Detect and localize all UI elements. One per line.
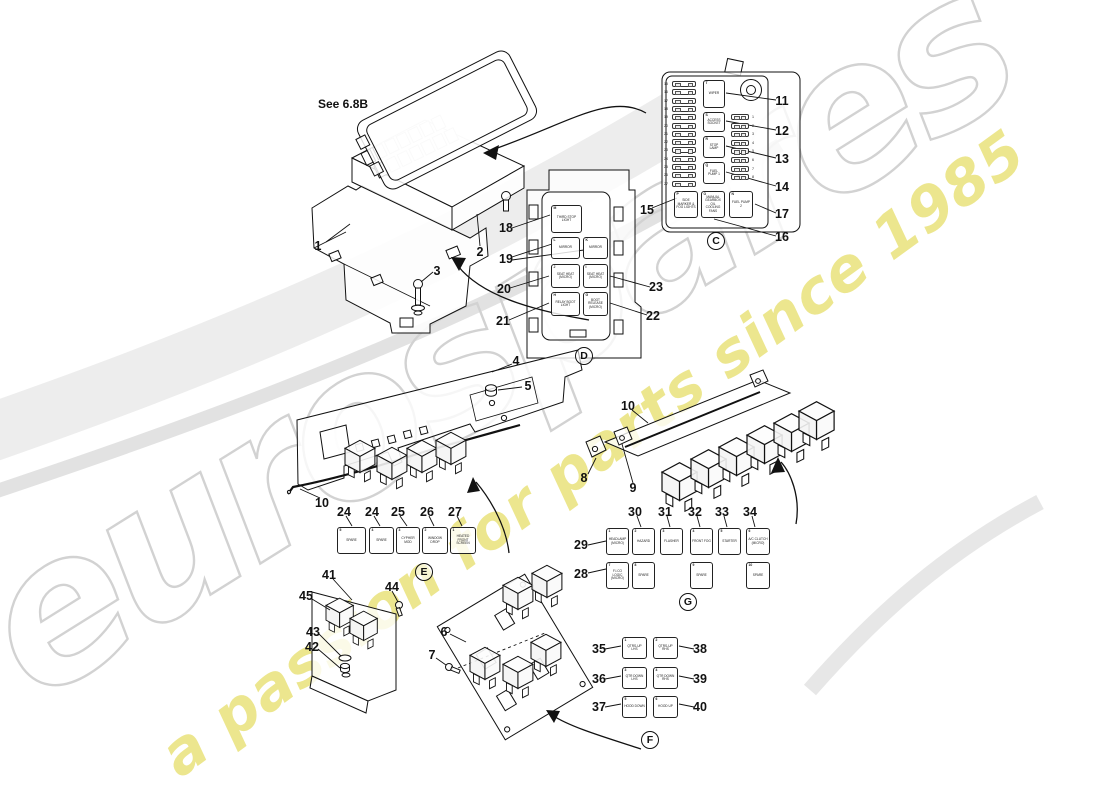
group-g-relay: 4FRONT FOG — [690, 528, 713, 555]
group-f-relay: 5HOOD DOWN — [622, 696, 647, 718]
part-number-34: 34 — [743, 505, 757, 519]
fuse-contact — [734, 125, 740, 129]
relay-position-mark: 9 — [693, 564, 695, 568]
relay-label: FUEL PUMP 1 — [705, 170, 723, 177]
relay-label: STOP LAMP — [705, 144, 723, 151]
relay-position-mark: R — [706, 138, 708, 142]
parts-diagram-page: eurospares a passion for parts since 198… — [0, 0, 1100, 800]
fuse-contact — [688, 125, 694, 129]
panel-c-left-fuse — [672, 123, 696, 129]
fuse-contact — [734, 142, 740, 146]
panel-c-left-fuse — [672, 164, 696, 170]
fuse-number: 17 — [664, 99, 668, 103]
labels-overlay: See 6.8B 1234510242425262789101112131417… — [0, 0, 1100, 800]
fuse-contact — [741, 150, 747, 154]
part-number-8: 8 — [581, 471, 588, 485]
relay-label: QTR DOWN RHS — [655, 675, 676, 682]
panel-c-right-fuse — [731, 114, 749, 120]
fuse-contact — [675, 141, 681, 145]
panel-d-relay: MTHIRD STOP LIGHT — [551, 205, 582, 233]
panel-d-relay: ISEAT HEAT (MICRO) — [583, 264, 608, 288]
part-number-10: 10 — [621, 399, 635, 413]
part-number-21: 21 — [496, 314, 510, 328]
fuse-number: 25 — [664, 165, 668, 169]
group-f-relay: 1QTRS-UP LHS — [622, 637, 647, 659]
relay-position-mark: 4 — [372, 529, 374, 533]
fuse-contact — [734, 168, 740, 172]
group-f-relay: 2QTRS-UP RHS — [653, 637, 678, 659]
relay-position-mark: M — [554, 207, 557, 211]
relay-position-mark: H — [554, 294, 556, 298]
relay-position-mark: 2 — [635, 530, 637, 534]
part-number-25: 25 — [391, 505, 405, 519]
group-g-relay: 8SPARE — [632, 562, 655, 589]
group-f-relay: 3QTR DOWN LHS — [622, 667, 647, 689]
panel-c-left-fuse — [672, 147, 696, 153]
panel-d-relay: HRELAY BOOT LIGHT — [551, 292, 580, 316]
relay-position-mark: 2 — [425, 529, 427, 533]
fuse-number: 1 — [752, 115, 754, 119]
part-number-33: 33 — [715, 505, 729, 519]
relay-position-mark: 6 — [749, 530, 751, 534]
fuse-number: 4 — [752, 141, 754, 145]
part-number-45: 45 — [299, 589, 313, 603]
part-number-22: 22 — [646, 309, 660, 323]
relay-label: HAZARD — [634, 540, 653, 543]
part-number-31: 31 — [658, 505, 672, 519]
panel-c-relay: QFUEL PUMP 1 — [703, 162, 725, 184]
group-f-relay: 4QTR DOWN RHS — [653, 667, 678, 689]
relay-position-mark: 1 — [625, 639, 627, 643]
relay-position-mark: 5 — [340, 529, 342, 533]
relay-label: WINDOW DROP — [424, 537, 446, 544]
fuse-number: 5 — [752, 149, 754, 153]
relay-position-mark: 3 — [625, 669, 627, 673]
part-number-18: 18 — [499, 221, 513, 235]
relay-label: FLASHER — [662, 540, 681, 543]
part-number-1: 1 — [315, 239, 322, 253]
part-number-42: 42 — [305, 640, 319, 654]
fuse-number: 6 — [752, 158, 754, 162]
relay-label: SPARE — [371, 539, 392, 542]
relay-label: RELAY BOOT LIGHT — [553, 301, 578, 308]
fuse-number: 7 — [752, 167, 754, 171]
fuse-contact — [688, 100, 694, 104]
part-number-30: 30 — [628, 505, 642, 519]
relay-label: FRONT FOG — [692, 540, 711, 543]
panel-c-left-fuse — [672, 106, 696, 112]
relay-label: FUEL PUMP 2 — [731, 201, 751, 208]
relay-label: HOOD DOWN — [624, 705, 645, 708]
panel-d-relay: GBOOT RELEASE (MICRO) — [583, 292, 608, 316]
part-number-5: 5 — [525, 379, 532, 393]
group-g-relay: 2HAZARD — [632, 528, 655, 555]
fuse-contact — [741, 176, 747, 180]
part-number-27: 27 — [448, 505, 462, 519]
fuse-number: 27 — [664, 182, 668, 186]
fuse-contact — [688, 174, 694, 178]
relay-label: THIRD STOP LIGHT — [553, 216, 580, 223]
fuse-contact — [741, 125, 747, 129]
fuse-contact — [688, 149, 694, 153]
panel-c-right-fuse — [731, 148, 749, 154]
fuse-contact — [734, 150, 740, 154]
part-number-44: 44 — [385, 580, 399, 594]
fuse-contact — [734, 159, 740, 163]
part-number-17: 17 — [775, 207, 789, 221]
fuse-contact — [688, 158, 694, 162]
panel-c-right-fuse — [731, 166, 749, 172]
group-g-relay: 7F.I.CO LOGIC (MICRO) — [606, 562, 629, 589]
relay-label: QTRS-UP RHS — [655, 645, 676, 652]
part-number-4: 4 — [513, 354, 520, 368]
panel-d-relay: JSEAT HEAT (MICRO) — [551, 264, 580, 288]
section-marker-c: C — [707, 232, 725, 250]
part-number-10: 10 — [315, 496, 329, 510]
panel-d-relay: KMIRROR — [583, 237, 608, 259]
group-g-relay: 9SPARE — [690, 562, 713, 589]
relay-position-mark: 3 — [399, 529, 401, 533]
fuse-number: 19 — [664, 115, 668, 119]
relay-label: WIPER — [705, 92, 723, 95]
panel-c-relay: TWIPER — [703, 80, 725, 108]
panel-c-right-fuse — [731, 157, 749, 163]
relay-label: SPARE — [634, 574, 653, 577]
part-number-39: 39 — [693, 672, 707, 686]
relay-label: QTR DOWN LHS — [624, 675, 645, 682]
fuse-number: 2 — [752, 124, 754, 128]
relay-position-mark: 5 — [625, 698, 627, 702]
relay-label: MIRROR — [553, 246, 578, 249]
part-number-38: 38 — [693, 642, 707, 656]
panel-c-right-fuse — [731, 123, 749, 129]
row-e-relay: 1HEATED FRONT SCREEN — [450, 527, 476, 554]
fuse-contact — [741, 116, 747, 120]
panel-c-left-fuse — [672, 139, 696, 145]
see-reference-note: See 6.8B — [318, 97, 368, 111]
part-number-14: 14 — [775, 180, 789, 194]
fuse-contact — [675, 83, 681, 87]
fuse-contact — [688, 116, 694, 120]
fuse-number: 20 — [664, 124, 668, 128]
part-number-23: 23 — [649, 280, 663, 294]
fuse-contact — [734, 116, 740, 120]
relay-position-mark: S — [706, 114, 708, 118]
part-number-26: 26 — [420, 505, 434, 519]
relay-label: HOOD UP — [655, 705, 676, 708]
part-number-13: 13 — [775, 152, 789, 166]
relay-label: A/C CLUTCH (MICRO) — [748, 538, 768, 545]
row-e-relay: 4SPARE — [369, 527, 394, 554]
relay-position-mark: 4 — [656, 669, 658, 673]
panel-d-relay: LMIRROR — [551, 237, 580, 259]
fuse-contact — [688, 108, 694, 112]
fuse-contact — [688, 183, 694, 187]
relay-label: ACCESS SOCKET — [705, 119, 723, 126]
relay-label: SPARE — [748, 574, 768, 577]
relay-label: MIRROR — [585, 246, 606, 249]
fuse-number: 24 — [664, 157, 668, 161]
relay-position-mark: 4 — [693, 530, 695, 534]
fuse-contact — [675, 100, 681, 104]
fuse-contact — [675, 125, 681, 129]
panel-c-relay: NFUEL PUMP 2 — [729, 191, 753, 218]
panel-c-left-fuse — [672, 114, 696, 120]
fuse-number: 23 — [664, 148, 668, 152]
relay-position-mark: Q — [706, 164, 709, 168]
relay-label: SEAT HEAT (MICRO) — [553, 273, 578, 280]
group-f-relay: 6HOOD UP — [653, 696, 678, 718]
fuse-contact — [741, 168, 747, 172]
part-number-29: 29 — [574, 538, 588, 552]
relay-label: MANUAL GEARBOX OIL COOLING FANS — [703, 196, 723, 213]
relay-position-mark: I — [586, 266, 587, 270]
section-marker-d: D — [575, 347, 593, 365]
relay-position-mark: L — [554, 239, 556, 243]
fuse-number: 26 — [664, 173, 668, 177]
part-number-12: 12 — [775, 124, 789, 138]
part-number-43: 43 — [306, 625, 320, 639]
panel-c-left-fuse — [672, 181, 696, 187]
part-number-35: 35 — [592, 642, 606, 656]
fuse-number: 15 — [664, 82, 668, 86]
panel-c-left-fuse — [672, 81, 696, 87]
part-number-7: 7 — [429, 648, 436, 662]
part-number-2: 2 — [477, 245, 484, 259]
part-number-9: 9 — [630, 481, 637, 495]
relay-position-mark: K — [586, 239, 588, 243]
fuse-contact — [675, 174, 681, 178]
fuse-contact — [741, 159, 747, 163]
relay-position-mark: 3 — [663, 530, 665, 534]
fuse-contact — [675, 166, 681, 170]
relay-position-mark: 10 — [749, 564, 753, 568]
row-e-relay: 5SPARE — [337, 527, 366, 554]
relay-position-mark: T — [706, 82, 708, 86]
part-number-32: 32 — [688, 505, 702, 519]
part-number-41: 41 — [322, 568, 336, 582]
group-g-relay: 10SPARE — [746, 562, 770, 589]
relay-position-mark: N — [732, 193, 734, 197]
relay-label: STARTER — [720, 540, 739, 543]
panel-c-left-fuse — [672, 172, 696, 178]
panel-c-relay: SACCESS SOCKET — [703, 112, 725, 132]
relay-position-mark: 1 — [453, 529, 455, 533]
relay-position-mark: 6 — [656, 698, 658, 702]
part-number-16: 16 — [775, 230, 789, 244]
relay-label: SIDE MARKER & FOG LIGHTS — [676, 199, 696, 209]
panel-c-right-fuse — [731, 140, 749, 146]
section-marker-e: E — [415, 563, 433, 581]
fuse-contact — [675, 116, 681, 120]
relay-position-mark: O — [704, 193, 707, 197]
relay-position-mark: P — [677, 193, 679, 197]
group-g-relay: 5STARTER — [718, 528, 741, 555]
part-number-28: 28 — [574, 567, 588, 581]
relay-position-mark: 8 — [635, 564, 637, 568]
panel-c-left-fuse — [672, 89, 696, 95]
panel-c-left-fuse — [672, 131, 696, 137]
relay-position-mark: 2 — [656, 639, 658, 643]
part-number-24: 24 — [337, 505, 351, 519]
part-number-24: 24 — [365, 505, 379, 519]
panel-c-left-fuse — [672, 156, 696, 162]
fuse-contact — [688, 91, 694, 95]
relay-label: HEADLAMP (MICRO) — [608, 538, 627, 545]
part-number-40: 40 — [693, 700, 707, 714]
fuse-number: 8 — [752, 175, 754, 179]
relay-label: BOOT RELEASE (MICRO) — [585, 299, 606, 309]
part-number-20: 20 — [497, 282, 511, 296]
group-g-relay: 1HEADLAMP (MICRO) — [606, 528, 629, 555]
panel-c-relay: OMANUAL GEARBOX OIL COOLING FANS — [701, 191, 725, 218]
section-marker-g: G — [679, 593, 697, 611]
relay-position-mark: J — [554, 266, 556, 270]
row-e-relay: 2WINDOW DROP — [422, 527, 448, 554]
relay-position-mark: G — [586, 294, 589, 298]
panel-c-relay: RSTOP LAMP — [703, 136, 725, 158]
row-e-relay: 3CYPHER MOD — [396, 527, 420, 554]
part-number-19: 19 — [499, 252, 513, 266]
panel-c-right-fuse — [731, 131, 749, 137]
fuse-number: 16 — [664, 90, 668, 94]
relay-label: F.I.CO LOGIC (MICRO) — [608, 570, 627, 580]
fuse-contact — [675, 149, 681, 153]
fuse-contact — [675, 108, 681, 112]
relay-label: SEAT HEAT (MICRO) — [585, 273, 606, 280]
fuse-contact — [675, 183, 681, 187]
fuse-number: 21 — [664, 132, 668, 136]
fuse-contact — [675, 133, 681, 137]
part-number-6: 6 — [441, 625, 448, 639]
section-marker-f: F — [641, 731, 659, 749]
fuse-contact — [734, 133, 740, 137]
part-number-3: 3 — [434, 264, 441, 278]
fuse-contact — [734, 176, 740, 180]
part-number-11: 11 — [775, 94, 788, 108]
fuse-contact — [675, 91, 681, 95]
fuse-contact — [688, 133, 694, 137]
fuse-contact — [688, 166, 694, 170]
panel-c-left-fuse — [672, 98, 696, 104]
relay-position-mark: 5 — [721, 530, 723, 534]
fuse-contact — [675, 158, 681, 162]
fuse-contact — [688, 83, 694, 87]
panel-c-relay: PSIDE MARKER & FOG LIGHTS — [674, 191, 698, 218]
fuse-contact — [688, 141, 694, 145]
fuse-number: 18 — [664, 107, 668, 111]
panel-c-right-fuse — [731, 174, 749, 180]
part-number-36: 36 — [592, 672, 606, 686]
group-g-relay: 6A/C CLUTCH (MICRO) — [746, 528, 770, 555]
fuse-contact — [741, 142, 747, 146]
relay-label: SPARE — [339, 539, 364, 542]
relay-position-mark: 7 — [609, 564, 611, 568]
part-number-37: 37 — [592, 700, 606, 714]
relay-label: CYPHER MOD — [398, 537, 418, 544]
group-g-relay: 3FLASHER — [660, 528, 683, 555]
fuse-number: 3 — [752, 132, 754, 136]
relay-position-mark: 1 — [609, 530, 611, 534]
relay-label: QTRS-UP LHS — [624, 645, 645, 652]
fuse-contact — [741, 133, 747, 137]
relay-label: HEATED FRONT SCREEN — [452, 535, 474, 545]
fuse-number: 22 — [664, 140, 668, 144]
part-number-15: 15 — [640, 203, 654, 217]
relay-label: SPARE — [692, 574, 711, 577]
